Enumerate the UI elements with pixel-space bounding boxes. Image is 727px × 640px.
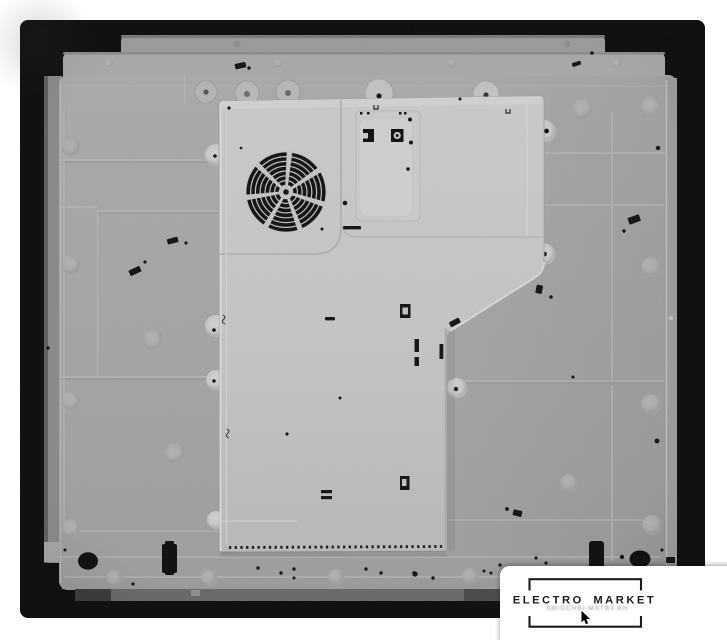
svg-text:SMIGCHBI-MSTB3.BH: SMIGCHBI-MSTB3.BH — [546, 605, 628, 612]
